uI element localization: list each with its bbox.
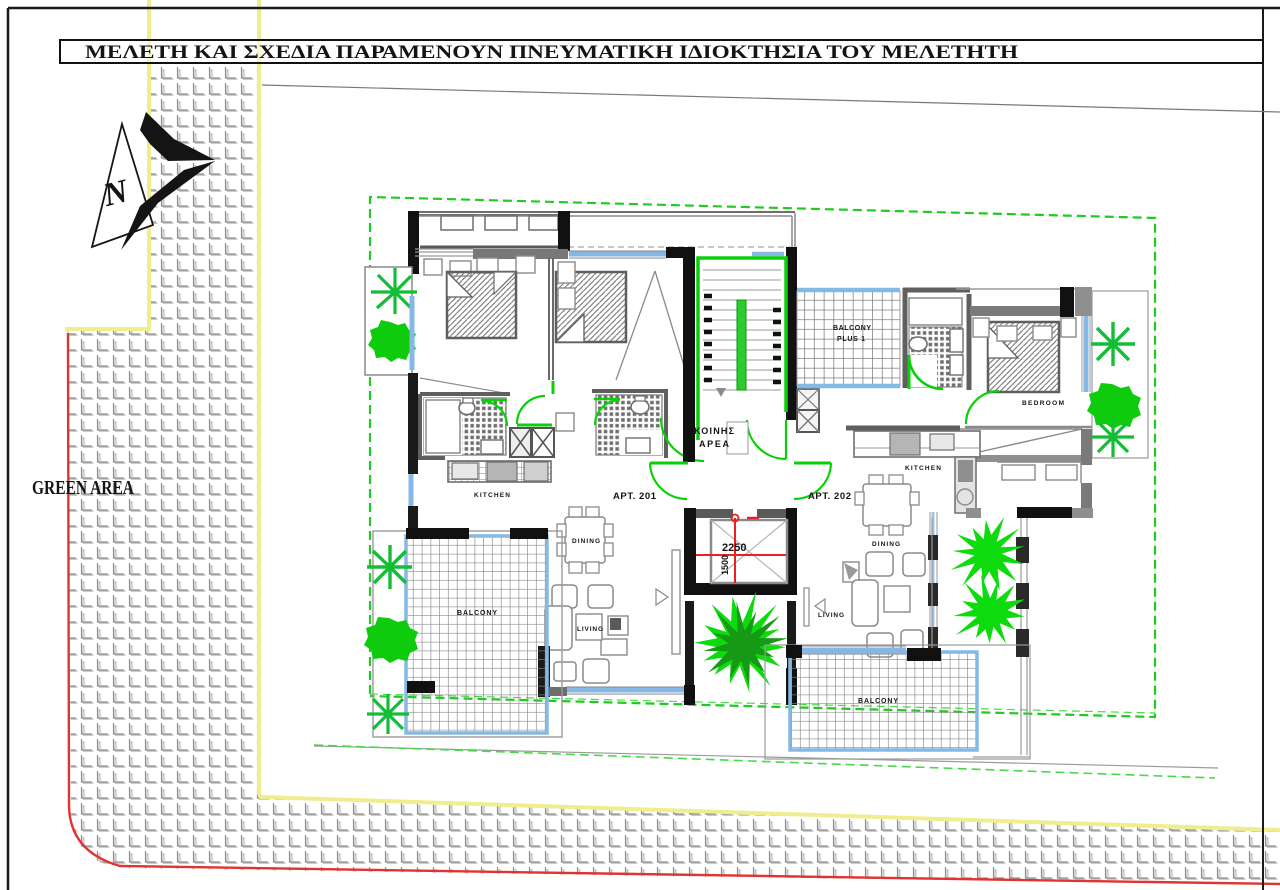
svg-text:KITCHEN: KITCHEN <box>474 492 510 499</box>
svg-text:KITCHEN: KITCHEN <box>905 465 941 472</box>
svg-text:ΚΟΙΝΗΣ: ΚΟΙΝΗΣ <box>694 426 735 436</box>
svg-text:APT. 202: APT. 202 <box>808 491 851 502</box>
svg-text:2250: 2250 <box>722 542 746 554</box>
svg-text:PLUS 1: PLUS 1 <box>837 336 865 343</box>
svg-text:BALCONY: BALCONY <box>858 698 898 705</box>
svg-text:GREEN AREA: GREEN AREA <box>32 477 134 499</box>
svg-text:DINING: DINING <box>872 541 900 548</box>
svg-text:ΑΡΕΑ: ΑΡΕΑ <box>699 439 730 449</box>
svg-text:APT. 201: APT. 201 <box>613 491 657 502</box>
svg-text:1500: 1500 <box>720 555 730 575</box>
svg-text:BALCONY: BALCONY <box>833 325 871 332</box>
svg-text:BEDROOM: BEDROOM <box>1022 400 1064 407</box>
svg-text:BALCONY: BALCONY <box>457 610 497 617</box>
svg-text:LIVING: LIVING <box>818 612 844 619</box>
svg-text:ΜΕΛΕΤΗ ΚΑΙ ΣΧΕΔΙΑ ΠΑΡΑΜΕΝΟΥΝ Π: ΜΕΛΕΤΗ ΚΑΙ ΣΧΕΔΙΑ ΠΑΡΑΜΕΝΟΥΝ ΠΝΕΥΜΑΤΙΚΗ … <box>85 42 1018 63</box>
svg-text:DINING: DINING <box>572 538 600 545</box>
svg-text:LIVING: LIVING <box>577 626 603 633</box>
